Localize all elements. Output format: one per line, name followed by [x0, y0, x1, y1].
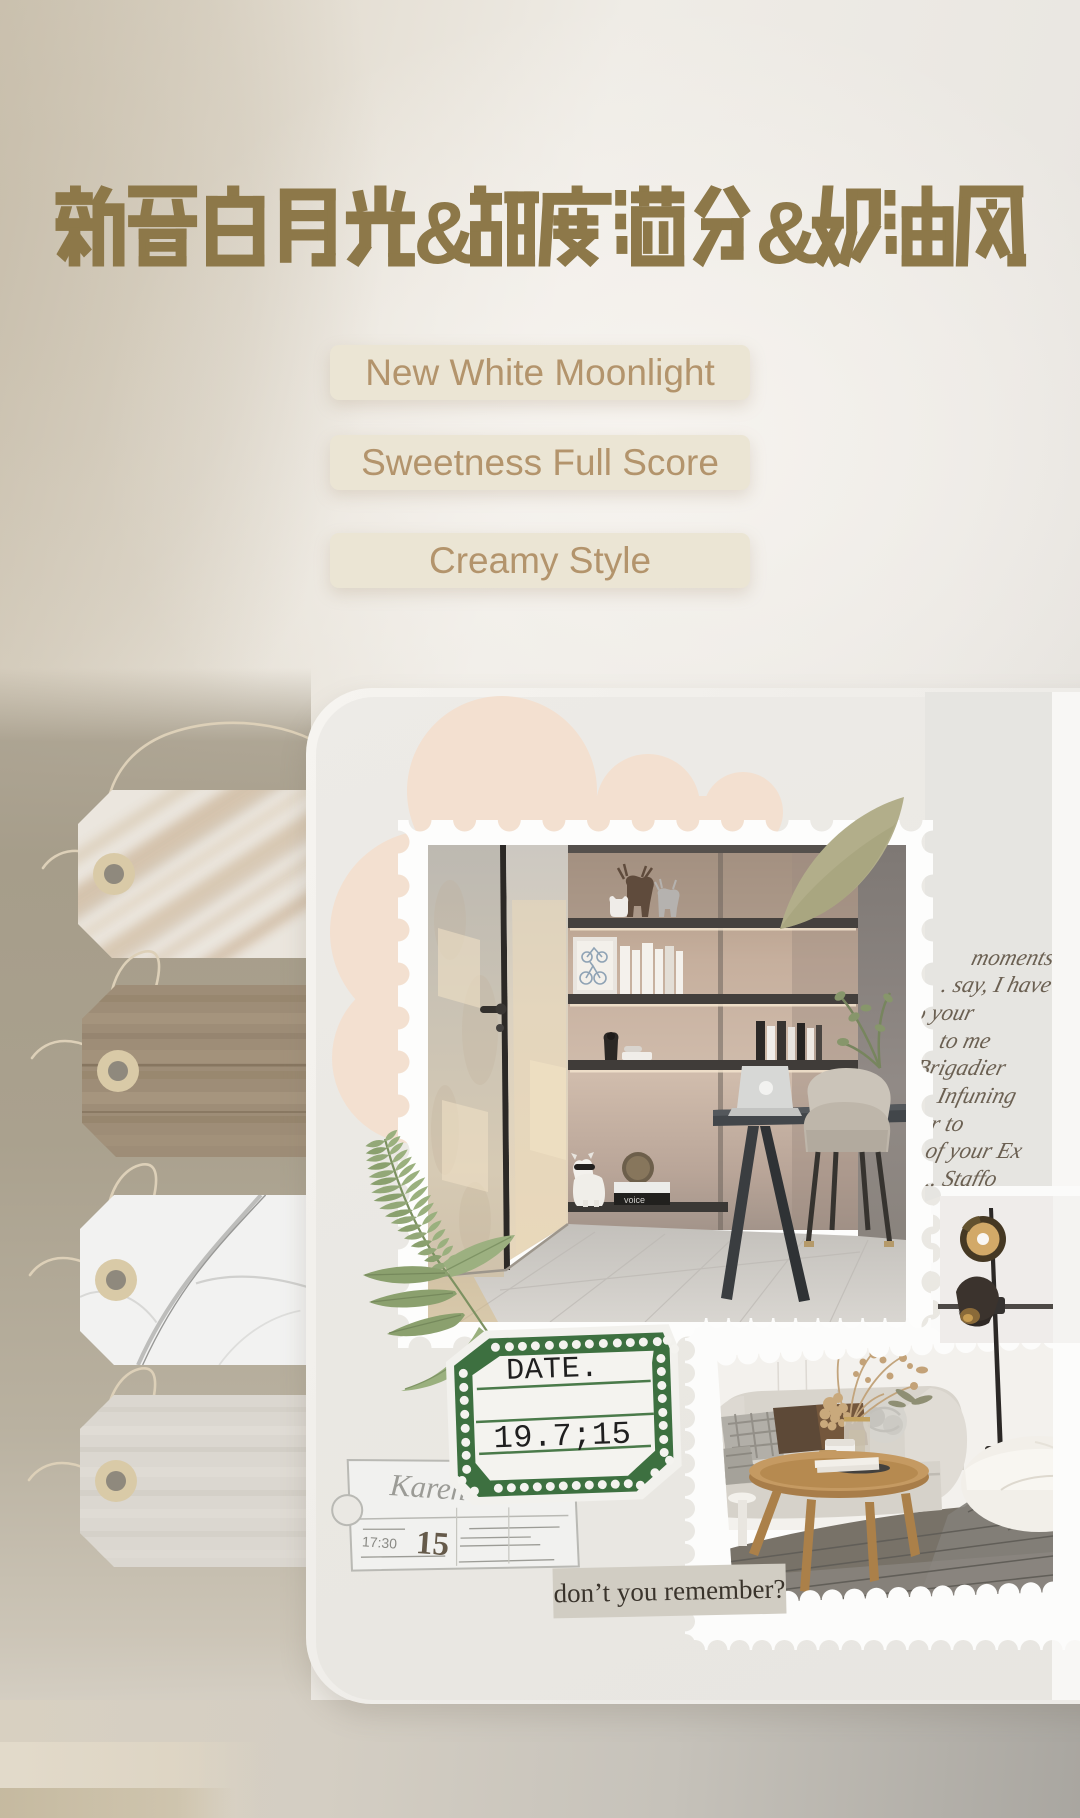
svg-text:DATE.: DATE. [506, 1352, 600, 1389]
svg-text:17:30: 17:30 [362, 1533, 398, 1551]
svg-text:19.7;15: 19.7;15 [493, 1416, 632, 1458]
svg-text:15: 15 [415, 1525, 450, 1563]
svg-text:&: & [413, 183, 477, 275]
svg-text:voice: voice [624, 1195, 645, 1205]
svg-text:&: & [755, 183, 819, 275]
